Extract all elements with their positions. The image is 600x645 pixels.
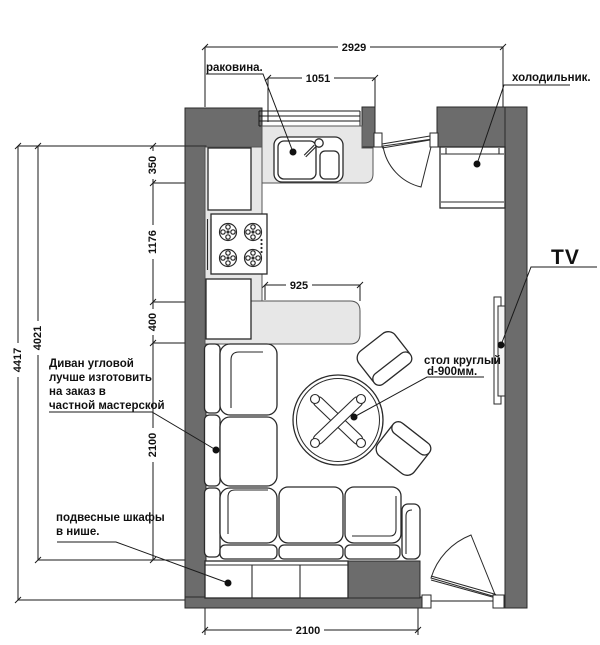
floor-plan: 2929 1051 925 2100 350 1176 400 2100 441… xyxy=(0,0,600,645)
dim-sofa-side: 2100 xyxy=(147,433,159,457)
dim-bar-depth: 400 xyxy=(147,313,159,331)
dim-kitchen-side: 1176 xyxy=(147,230,159,254)
wall-left xyxy=(185,146,206,608)
dim-sink-run: 1051 xyxy=(306,73,330,85)
entry-door-top xyxy=(374,133,438,187)
leader-dot-table xyxy=(351,414,358,421)
sofa-armrest xyxy=(402,504,420,559)
niche-cabinets xyxy=(205,561,348,598)
base-cabinet-upper xyxy=(208,148,251,210)
leader-dot-sink xyxy=(290,149,297,156)
table-label-line2: d-900мм. xyxy=(427,366,477,378)
wall-right xyxy=(505,107,527,608)
sink-basin-large xyxy=(278,141,316,179)
balcony-door-bottom xyxy=(422,535,504,608)
sofa-back-cushion xyxy=(345,545,400,559)
door-jamb xyxy=(374,133,382,147)
sofa-seat xyxy=(345,487,401,543)
dim-bar-length: 925 xyxy=(290,280,308,292)
sofa-back-cushion xyxy=(220,545,277,559)
dim-inner-height: 4021 xyxy=(32,326,44,350)
dim-outer-height: 4417 xyxy=(12,348,24,372)
leader-dot-fridge xyxy=(474,161,481,168)
leader-dot-tv xyxy=(498,342,505,349)
sink-basin-small xyxy=(320,151,339,179)
sofa-note-line1: Диван угловой xyxy=(49,358,134,370)
dim-counter-depth: 350 xyxy=(147,156,159,174)
wall-bottom xyxy=(185,597,426,608)
dim-top-width: 2929 xyxy=(342,42,366,54)
sofa-seat xyxy=(220,344,277,415)
fridge-label: холодильник. xyxy=(512,72,591,84)
leader-dot-cabinets xyxy=(225,580,232,587)
kitchen xyxy=(205,126,373,344)
fridge xyxy=(440,147,505,208)
dining-table xyxy=(293,375,383,465)
leader-dot-sofa xyxy=(213,447,220,454)
sink xyxy=(274,137,343,182)
wall-top-stub xyxy=(362,107,375,147)
faucet xyxy=(315,139,323,147)
door-jamb xyxy=(430,133,438,147)
window xyxy=(259,111,360,126)
chair xyxy=(354,328,415,388)
wall-top-left xyxy=(185,108,262,147)
tv xyxy=(494,297,505,404)
floor-plan-svg: 2929 1051 925 2100 350 1176 400 2100 441… xyxy=(0,0,600,645)
sofa-note-line4: частной мастерской xyxy=(49,400,165,412)
stove xyxy=(208,214,268,274)
door-jamb xyxy=(422,595,431,608)
tv-label: TV xyxy=(551,246,580,269)
sofa-back-cushion xyxy=(205,488,221,557)
wall-niche-block xyxy=(348,561,420,598)
sink-label: раковина. xyxy=(206,62,263,74)
cabinets-label-line2: в нише. xyxy=(56,526,99,538)
sofa-note-line2: лучше изготовить xyxy=(49,372,152,384)
sofa-seat xyxy=(279,487,343,543)
sofa-note-line3: на заказ в xyxy=(49,386,106,398)
door-jamb xyxy=(493,595,504,608)
base-cabinet-lower xyxy=(206,279,251,339)
sofa-back-cushion xyxy=(205,344,221,413)
sofa-seat xyxy=(220,417,277,486)
sofa-back-cushion xyxy=(279,545,343,559)
dim-bottom-width: 2100 xyxy=(296,625,320,637)
cabinets-label-line1: подвесные шкафы xyxy=(56,512,165,524)
